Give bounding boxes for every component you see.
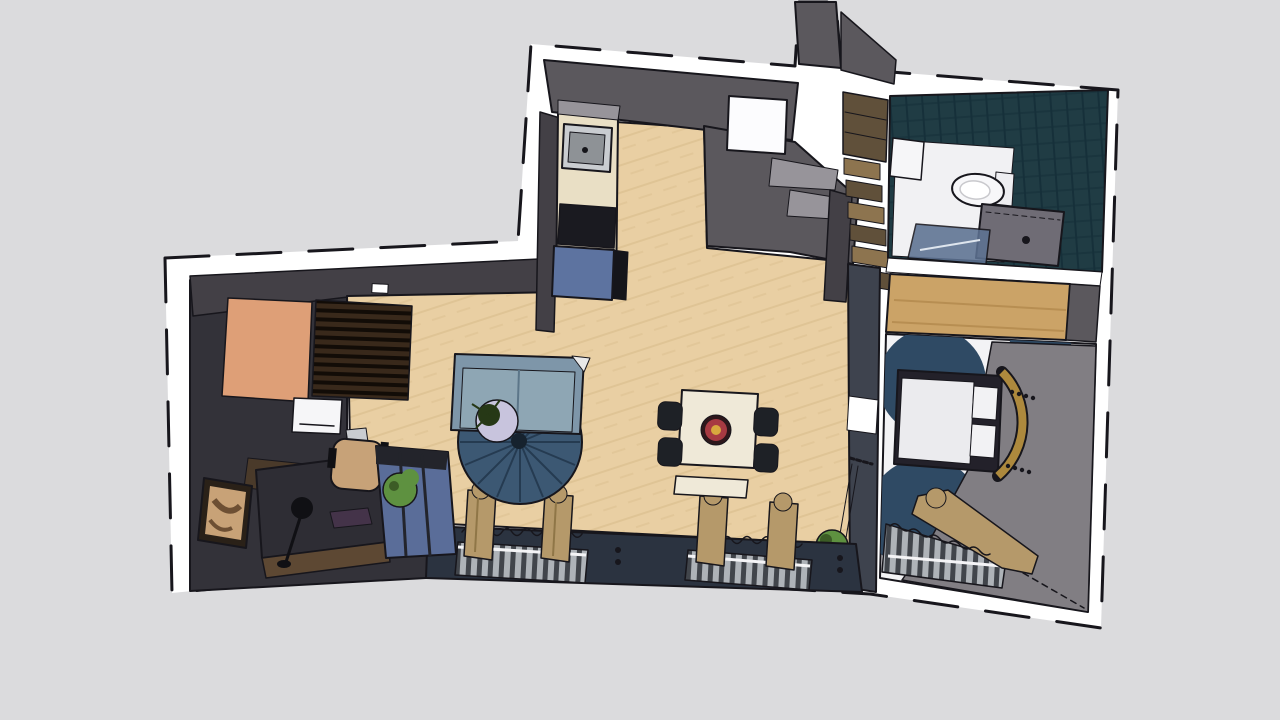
bed-mattress: [898, 378, 974, 464]
washing-machine: [292, 398, 342, 434]
bathroom-sink: [890, 138, 924, 180]
curtain: [766, 502, 798, 570]
curtain: [696, 496, 728, 566]
dining-chair: [753, 407, 778, 436]
wall-fitting: [837, 567, 843, 573]
curtain-tuft: [774, 493, 792, 511]
rug-hub: [511, 433, 527, 449]
floor-plan-canvas[interactable]: [0, 0, 1280, 720]
curtain-tuft: [926, 488, 946, 508]
centerpiece-bowl-center: [711, 425, 721, 435]
wall-fitting: [615, 559, 621, 565]
laptop: [330, 508, 372, 528]
wardrobe-side-wall: [1066, 284, 1100, 342]
curtain: [464, 490, 496, 560]
sink-drain: [582, 147, 588, 153]
model-viewport[interactable]: [0, 0, 1280, 720]
blue-cabinet: [552, 246, 614, 300]
potted-plant-shade: [389, 481, 399, 491]
dining-chair: [753, 443, 778, 472]
dining-chair: [657, 401, 682, 430]
dining-chair: [657, 437, 682, 466]
desk-lamp-base: [277, 560, 291, 568]
pillow: [972, 386, 998, 420]
fridge: [727, 96, 787, 154]
vanity-knob: [1022, 236, 1030, 244]
wall-fitting: [615, 547, 621, 553]
door-opening: [847, 396, 878, 434]
potted-plant-leaf: [401, 469, 419, 487]
shower-screen: [908, 224, 990, 264]
cooktop: [558, 204, 616, 248]
curtain: [541, 494, 573, 562]
stair-landing: [843, 92, 888, 162]
desk-lamp: [291, 497, 313, 519]
pillow: [970, 424, 996, 458]
stairwell-top-wall: [795, 2, 841, 68]
console-bench: [674, 476, 748, 498]
light-switch: [372, 284, 388, 294]
wall-fitting: [837, 555, 843, 561]
doormat: [222, 298, 312, 402]
slatted-rack: [312, 300, 412, 400]
